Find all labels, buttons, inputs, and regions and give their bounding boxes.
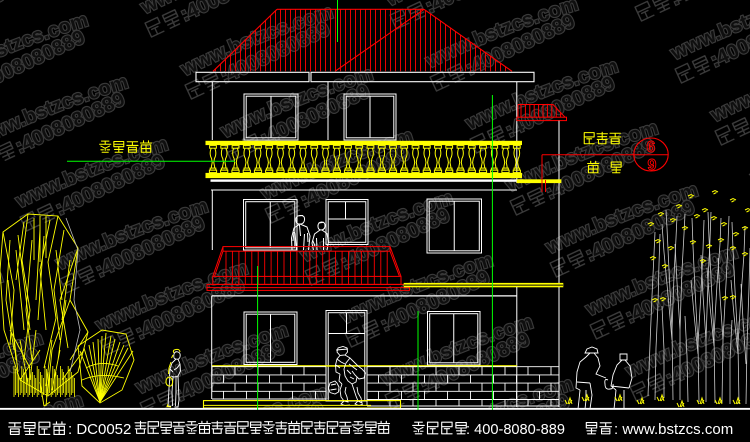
- svg-text:: www.bstzcs.com: : www.bstzcs.com: [614, 421, 733, 438]
- svg-text:9: 9: [648, 157, 657, 174]
- svg-text:: 400-8080-889: : 400-8080-889: [466, 422, 565, 438]
- svg-text:: DC0052: : DC0052: [68, 421, 131, 438]
- svg-text:6: 6: [647, 139, 656, 156]
